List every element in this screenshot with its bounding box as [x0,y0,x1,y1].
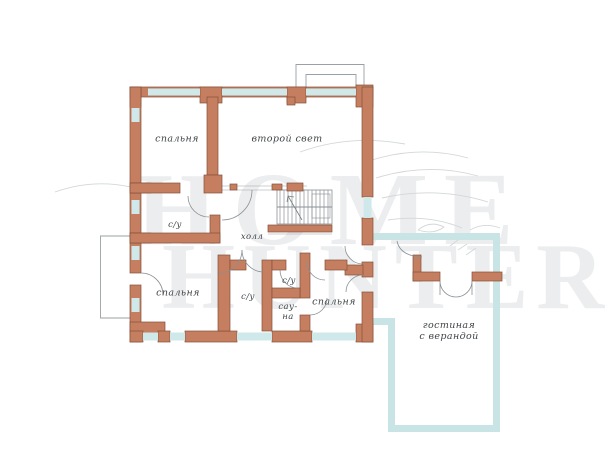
room-label-bathroom-middle: с/у [241,293,255,303]
room-label-bedroom-bottom-right: спальня [312,298,356,309]
room-label-second-light: второй свет [251,135,322,146]
room-label-bathroom-small: с/у [282,277,296,287]
room-label-bedroom-top: спальня [155,135,199,146]
hall-door-arc [222,190,252,220]
room-label-living-line2: с верандой [419,332,478,343]
veranda-double-door-arcs [440,281,472,297]
room-label-living-veranda: гостиная с верандой [419,321,478,343]
right-wall-door-arc-lower [346,275,363,292]
veranda-corner-door-arc [397,241,422,257]
right-wall-door-arc-upper [345,246,363,264]
bathroom-left-door-arc [188,196,209,217]
room-label-hall: холл [241,233,263,243]
floor-plan-canvas: HOME HUNTER [0,0,607,455]
balcony-outline [296,65,364,88]
room-label-bathroom-left: с/у [168,221,182,231]
room-label-sauna: сау- на [278,303,297,323]
floor-plan-drawing [0,0,607,455]
room-label-sauna-line2: на [278,313,297,323]
staircase [277,190,332,224]
room-label-bedroom-bottom-left: спальня [156,289,200,300]
